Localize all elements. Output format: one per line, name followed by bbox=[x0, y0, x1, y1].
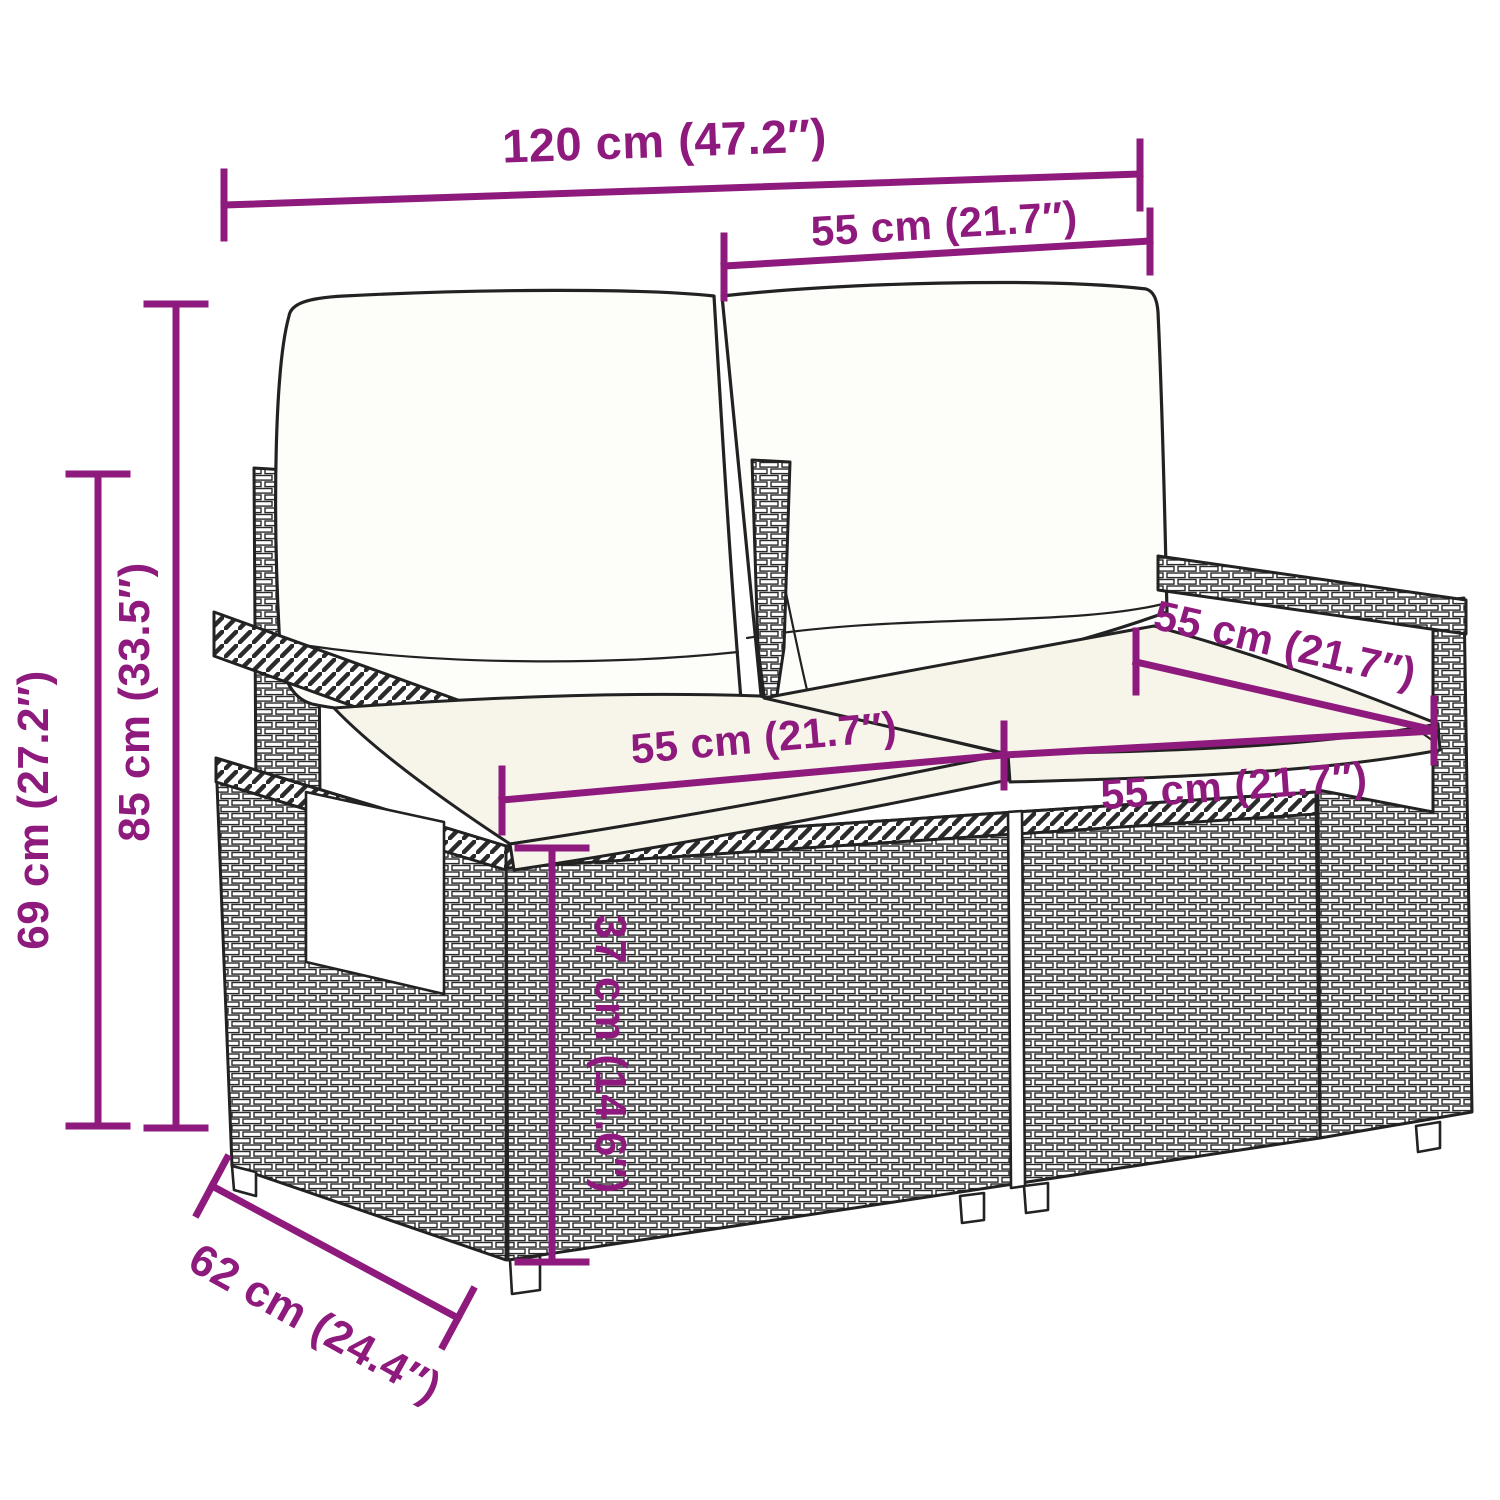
dim-label-total-height: 85 cm (33.5″) bbox=[110, 562, 159, 842]
left-armrest-window bbox=[306, 792, 444, 994]
dim-label-seat-height: 37 cm (14.6″) bbox=[586, 914, 635, 1194]
dim-label-total-depth: 62 cm (24.4″) bbox=[181, 1234, 449, 1412]
sofa-dimension-drawing: 120 cm (47.2″) 55 cm (21.7″) 85 cm (33.5… bbox=[0, 0, 1500, 1500]
sofa-foot bbox=[232, 1166, 256, 1196]
dim-label-total-width: 120 cm (47.2″) bbox=[501, 108, 827, 172]
product-dimension-image: 120 cm (47.2″) 55 cm (21.7″) 85 cm (33.5… bbox=[0, 0, 1500, 1500]
sofa-foot bbox=[1024, 1183, 1048, 1213]
base-module-seam bbox=[1008, 811, 1025, 1188]
sofa-foot bbox=[960, 1193, 984, 1223]
back-cushion-left bbox=[276, 290, 742, 720]
dimension-total-height: 85 cm (33.5″) bbox=[110, 304, 205, 1128]
dim-label-armrest-height: 69 cm (27.2″) bbox=[9, 670, 58, 950]
sofa-foot bbox=[1416, 1122, 1440, 1152]
